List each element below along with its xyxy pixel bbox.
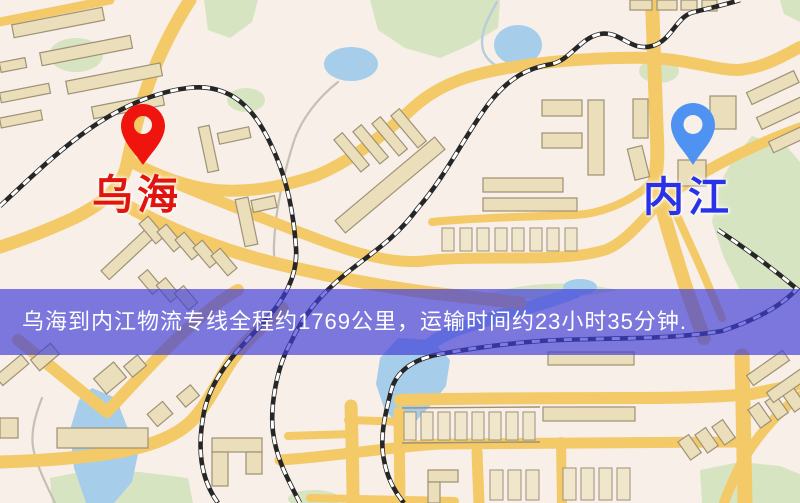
wuhai-city-label: 乌海 [92, 175, 182, 216]
route-info-banner: 乌海到内江物流专线全程约1769公里，运输时间约23小时35分钟. [0, 289, 800, 355]
route-info-text: 乌海到内江物流专线全程约1769公里，运输时间约23小时35分钟. [0, 289, 800, 355]
map-graphics [0, 0, 800, 503]
neijiang-city-label: 内江 [643, 177, 733, 218]
map-canvas[interactable]: 乌海 内江 乌海到内江物流专线全程约1769公里，运输时间约23小时35分钟. [0, 0, 800, 503]
